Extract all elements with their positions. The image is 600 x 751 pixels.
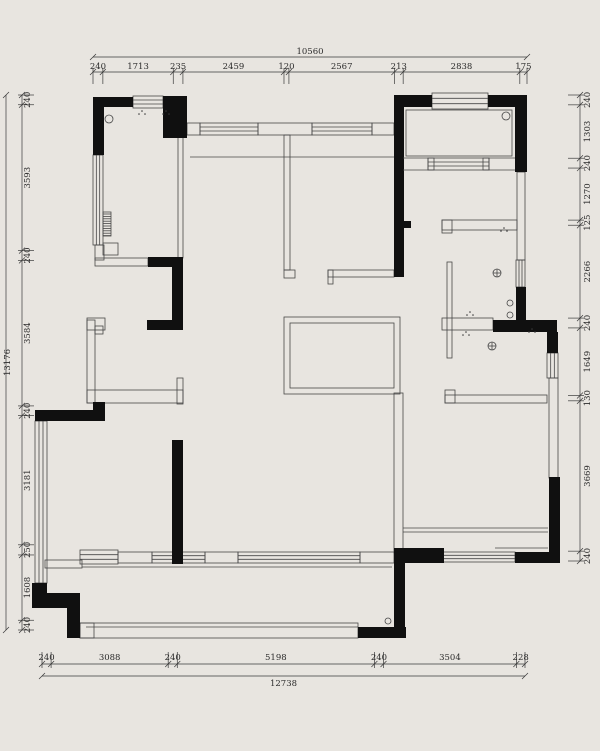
partition-wall (103, 243, 118, 255)
dim-label-right-8: 130 (583, 390, 593, 406)
dimension-annotations: 2401713235245912025672132838175105602403… (3, 47, 593, 689)
radiator-icon (103, 212, 111, 236)
structural-wall-segment (147, 320, 183, 330)
partition-wall (87, 390, 183, 403)
dim-label-left-7: 1608 (23, 577, 33, 599)
partition-wall (45, 560, 82, 568)
ceiling-point-icon (502, 112, 510, 120)
partition-wall (394, 393, 403, 553)
dim-label-right-0: 240 (583, 92, 593, 108)
ceiling-point-icon (105, 115, 113, 123)
floor-plan-sheet: 2401713235245912025672132838175105602403… (0, 0, 600, 751)
partition-wall (87, 320, 95, 403)
dim-label-right-1: 1303 (583, 121, 593, 143)
dim-label-right-3: 1270 (583, 183, 593, 205)
dim-total-top: 10560 (296, 47, 323, 57)
window-icon (238, 552, 360, 563)
partition-wall (118, 552, 152, 563)
dim-label-right-4: 125 (583, 215, 593, 231)
structural-wall-segment (515, 552, 559, 563)
window-icon (80, 550, 118, 564)
window-icon (547, 353, 558, 378)
partition-wall (205, 552, 238, 563)
spot-dots-icon (500, 227, 508, 232)
floor-drain-icon (488, 342, 496, 350)
dim-label-bottom-5: 3504 (439, 653, 461, 663)
floor-drain-icon (493, 269, 501, 277)
dim-label-right-10: 240 (583, 548, 593, 564)
partition-wall (445, 395, 547, 403)
structural-wall-segment (404, 95, 432, 107)
fixture-symbols (103, 110, 536, 624)
structural-wall-segment (93, 97, 133, 107)
structural-wall-segment (516, 287, 526, 322)
structural-wall-segment (172, 440, 183, 564)
window-icon (516, 260, 525, 287)
dim-label-top-4: 120 (278, 62, 294, 72)
structural-wall-segment (172, 257, 183, 330)
floor-plan-drawing: 2401713235245912025672132838175105602403… (0, 0, 600, 751)
structural-wall-segment (67, 608, 80, 638)
partition-wall (549, 378, 558, 478)
dim-chain-right: 24013032401270125226624016491303669240 (568, 92, 593, 564)
dim-label-left-3: 3584 (23, 322, 33, 344)
dim-label-top-2: 235 (170, 62, 186, 72)
ceiling-point-icon (507, 300, 513, 306)
partition-wall (290, 323, 394, 388)
partition-wall (442, 318, 493, 330)
partition-wall (177, 378, 183, 404)
dim-label-right-7: 1649 (583, 351, 593, 373)
spot-dots-icon (466, 311, 474, 316)
dim-label-top-6: 213 (391, 62, 407, 72)
dim-label-left-8: 240 (23, 617, 33, 633)
structural-wall-segment (35, 410, 105, 421)
dim-label-top-0: 240 (90, 62, 106, 72)
partition-wall (447, 262, 452, 358)
partition-wall (483, 158, 489, 170)
structural-wall-segment (32, 583, 47, 608)
window-icon (35, 421, 47, 583)
dim-chain-left: 240359324035842403181250160824013176 (3, 92, 34, 633)
partition-wall (80, 623, 94, 638)
dim-label-right-5: 2266 (583, 261, 593, 283)
dim-label-right-2: 240 (583, 155, 593, 171)
partition-wall (95, 258, 148, 266)
partition-wall (178, 137, 183, 258)
ceiling-point-icon (385, 618, 391, 624)
dim-label-left-5: 3181 (23, 469, 33, 491)
window-icon (432, 93, 488, 109)
structural-walls (32, 95, 560, 638)
dim-label-bottom-4: 240 (371, 653, 387, 663)
window-icon (200, 123, 258, 135)
dim-label-left-1: 3593 (23, 167, 33, 189)
partition-wall (187, 123, 200, 135)
partition-wall (284, 270, 295, 278)
dim-label-bottom-0: 240 (38, 653, 54, 663)
partition-wall (258, 123, 312, 135)
window-icon (133, 96, 163, 108)
dim-label-left-2: 240 (23, 247, 33, 263)
dim-total-left: 13176 (3, 349, 13, 376)
ceiling-point-icon (507, 312, 513, 318)
structural-wall-segment (394, 95, 404, 277)
dim-label-top-7: 2838 (451, 62, 473, 72)
dim-label-bottom-6: 228 (513, 653, 529, 663)
dim-total-bottom: 12738 (270, 679, 297, 689)
dim-label-left-6: 250 (23, 542, 33, 558)
dim-label-top-3: 2459 (223, 62, 245, 72)
partition-wall (372, 123, 394, 135)
structural-wall-segment (394, 553, 405, 638)
partition-wall (406, 110, 512, 156)
structural-wall-segment (488, 95, 517, 107)
dim-label-left-4: 240 (23, 403, 33, 419)
structural-wall-segment (47, 593, 80, 608)
dim-label-top-5: 2567 (331, 62, 353, 72)
structural-wall-segment (549, 477, 560, 563)
dim-label-left-0: 240 (23, 92, 33, 108)
partition-wall (517, 172, 525, 260)
dim-label-bottom-2: 240 (165, 653, 181, 663)
structural-wall-segment (547, 332, 558, 353)
dim-label-right-9: 3669 (583, 465, 593, 487)
structural-wall-segment (163, 96, 187, 138)
dim-label-right-6: 240 (583, 315, 593, 331)
dim-chain-top: 240171323524591202567213283817510560 (90, 47, 532, 84)
partition-wall (360, 552, 394, 563)
structural-wall-segment (404, 221, 411, 228)
dim-label-bottom-1: 3088 (99, 653, 121, 663)
window-icon (443, 552, 515, 562)
partition-wall (284, 317, 400, 394)
window-icon (312, 123, 372, 135)
window-icon (93, 155, 103, 245)
spot-dots-icon (138, 110, 146, 115)
dim-label-top-8: 175 (515, 62, 531, 72)
partition-wall (442, 220, 517, 230)
spot-dots-icon (462, 331, 470, 336)
structural-wall-segment (515, 95, 527, 172)
partition-wall (80, 623, 358, 638)
partition-wall (445, 390, 455, 403)
partition-wall (428, 158, 434, 170)
dim-label-bottom-3: 5198 (265, 653, 287, 663)
window-icon (428, 158, 489, 170)
dim-chain-bottom: 24030882405198240350422812738 (38, 652, 528, 689)
structural-wall-segment (493, 320, 557, 332)
partition-wall (442, 220, 452, 233)
dim-label-top-1: 1713 (127, 62, 149, 72)
partition-wall (284, 135, 290, 270)
partition-wall (328, 270, 394, 277)
window-bands (35, 93, 558, 583)
